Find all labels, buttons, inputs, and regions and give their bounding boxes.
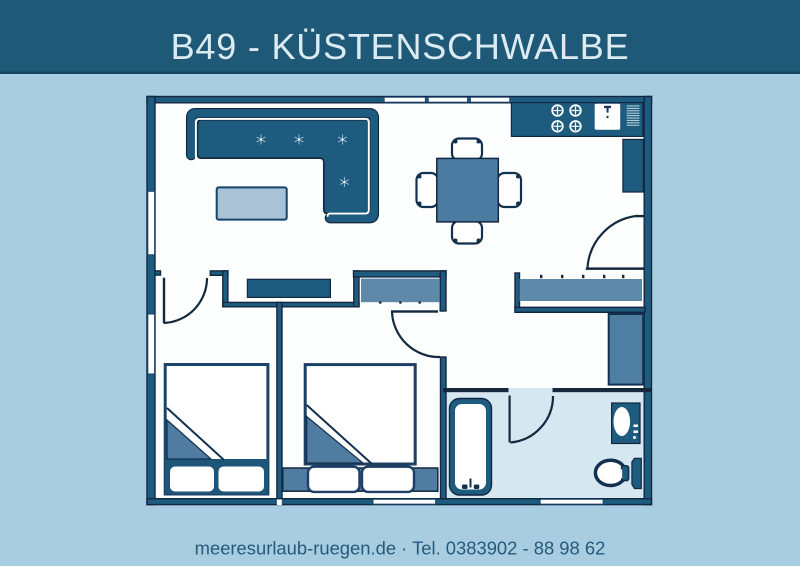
svg-text:meeresurlaub-ruegen.de · Tel.: meeresurlaub-ruegen.de · Tel. 0383902 - … <box>195 538 606 559</box>
svg-text:B49 - KÜSTENSCHWALBE: B49 - KÜSTENSCHWALBE <box>171 26 630 67</box>
